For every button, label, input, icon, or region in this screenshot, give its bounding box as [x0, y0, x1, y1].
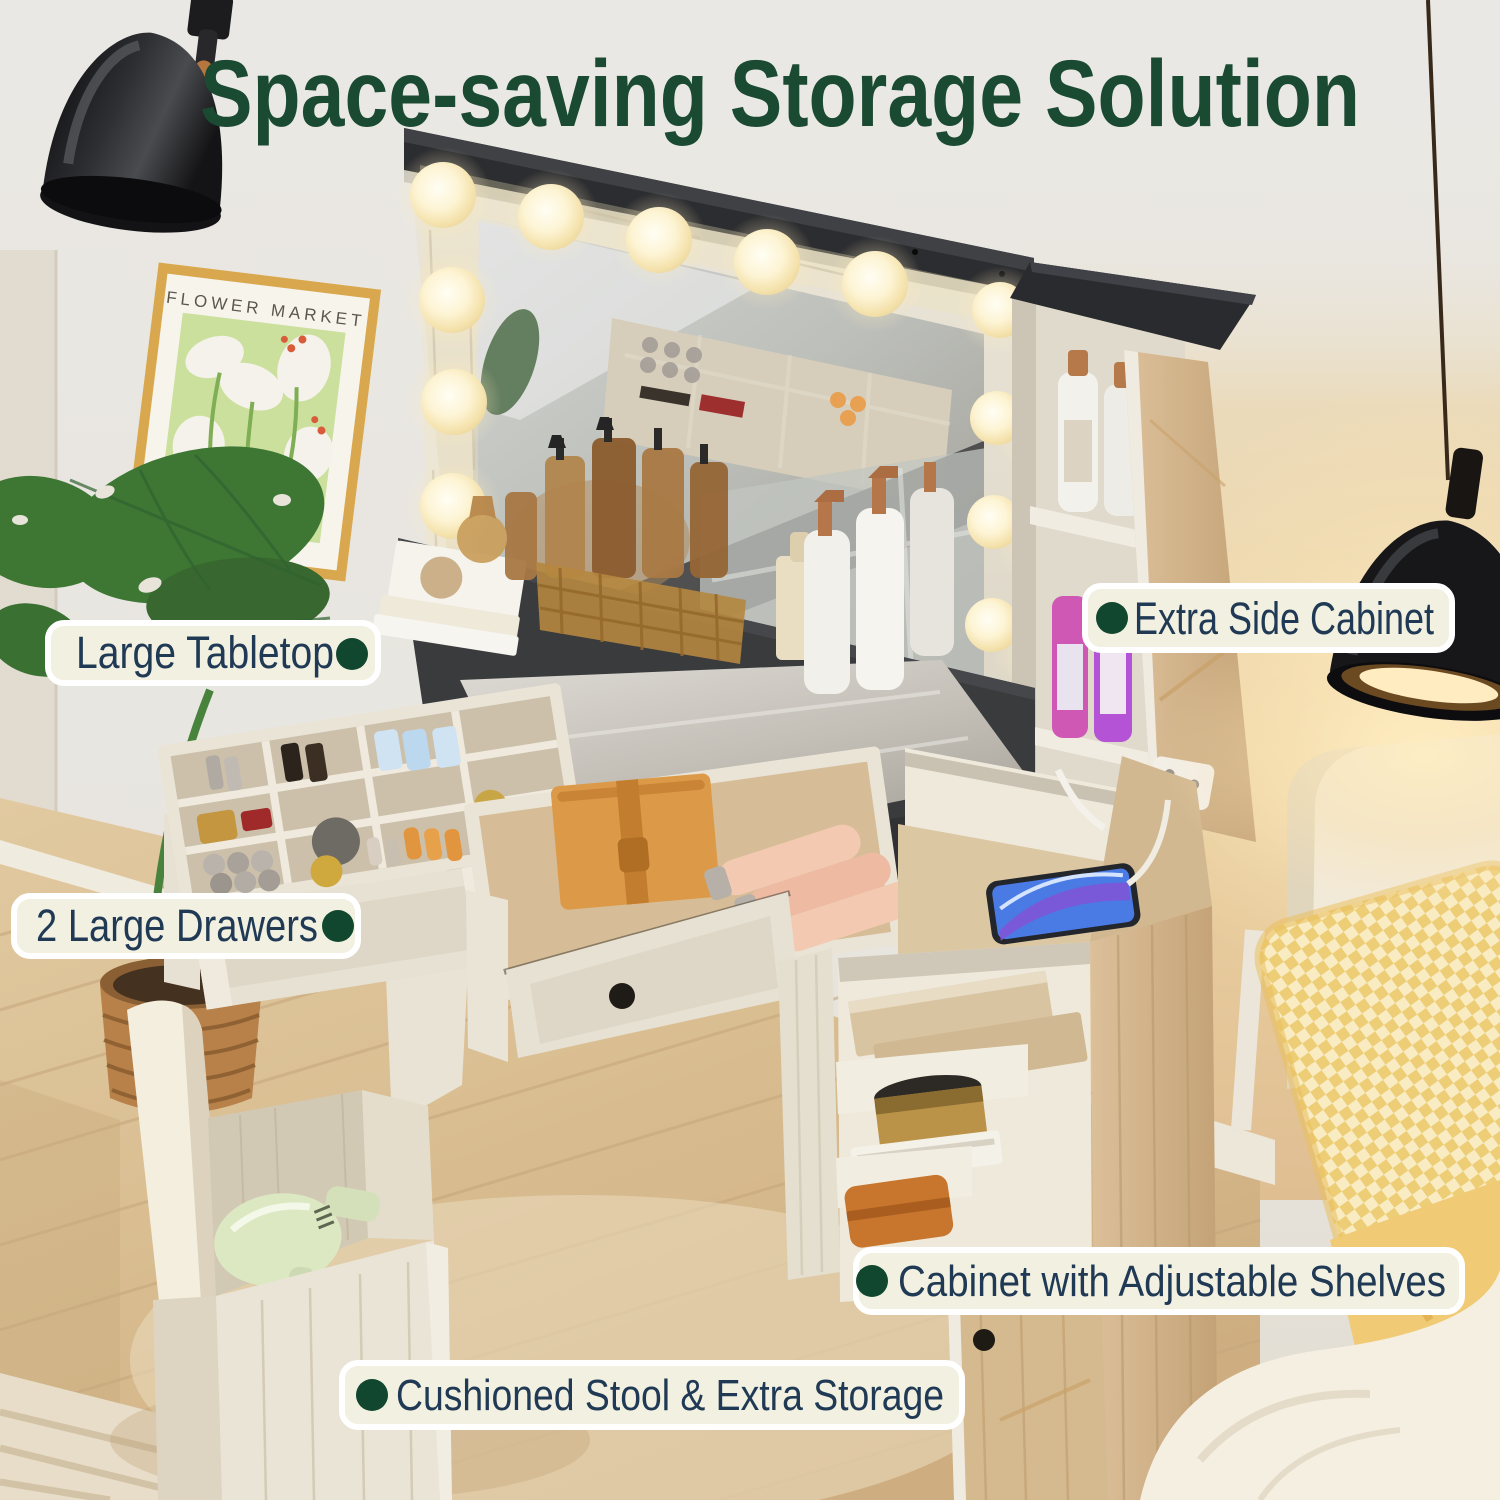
svg-text:Extra Side Cabinet: Extra Side Cabinet	[1134, 593, 1434, 644]
svg-text:2 Large Drawers: 2 Large Drawers	[36, 900, 318, 951]
svg-text:Space-saving Storage Solution: Space-saving Storage Solution	[200, 41, 1360, 147]
svg-text:Cushioned Stool & Extra Storag: Cushioned Stool & Extra Storage	[396, 1371, 944, 1420]
svg-text:Large Tabletop: Large Tabletop	[76, 627, 334, 678]
svg-text:Cabinet with Adjustable Shelve: Cabinet with Adjustable Shelves	[898, 1257, 1446, 1306]
